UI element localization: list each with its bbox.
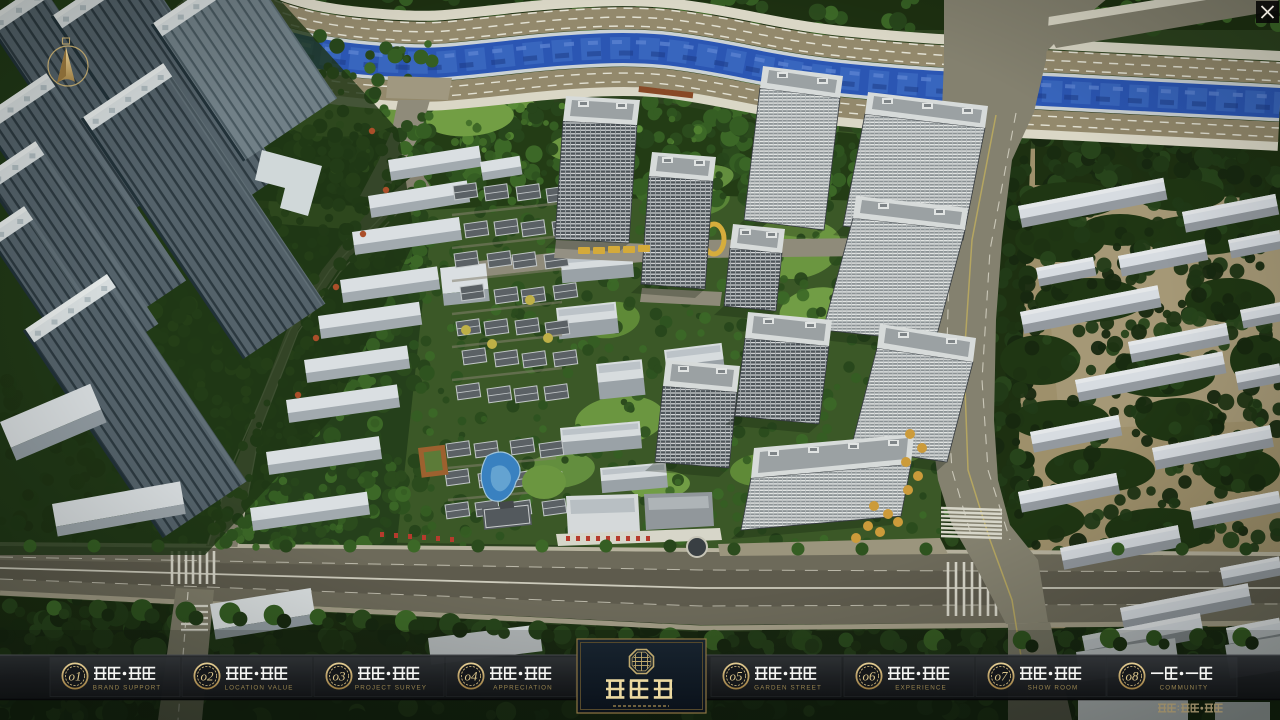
svg-text:o3: o3 <box>333 669 347 684</box>
svg-text:o8: o8 <box>1126 669 1140 684</box>
svg-text:APPRECIATION: APPRECIATION <box>493 685 553 692</box>
svg-text:GARDEN STREET: GARDEN STREET <box>754 685 822 692</box>
svg-text:PROJECT SURVEY: PROJECT SURVEY <box>355 685 427 692</box>
svg-text:o2: o2 <box>201 669 215 684</box>
svg-text:SHOW ROOM: SHOW ROOM <box>1028 685 1079 692</box>
svg-text:EXPERIENCE: EXPERIENCE <box>895 685 947 692</box>
svg-text:o5: o5 <box>730 669 744 684</box>
svg-text:COMMUNITY: COMMUNITY <box>1160 685 1209 692</box>
svg-text:LOCATION VALUE: LOCATION VALUE <box>224 685 293 692</box>
svg-text:o1: o1 <box>69 669 82 684</box>
svg-text:o6: o6 <box>863 669 877 684</box>
svg-text:o4: o4 <box>465 669 479 684</box>
svg-text:o7: o7 <box>995 669 1009 684</box>
svg-text:BRAND SUPPORT: BRAND SUPPORT <box>93 685 161 692</box>
